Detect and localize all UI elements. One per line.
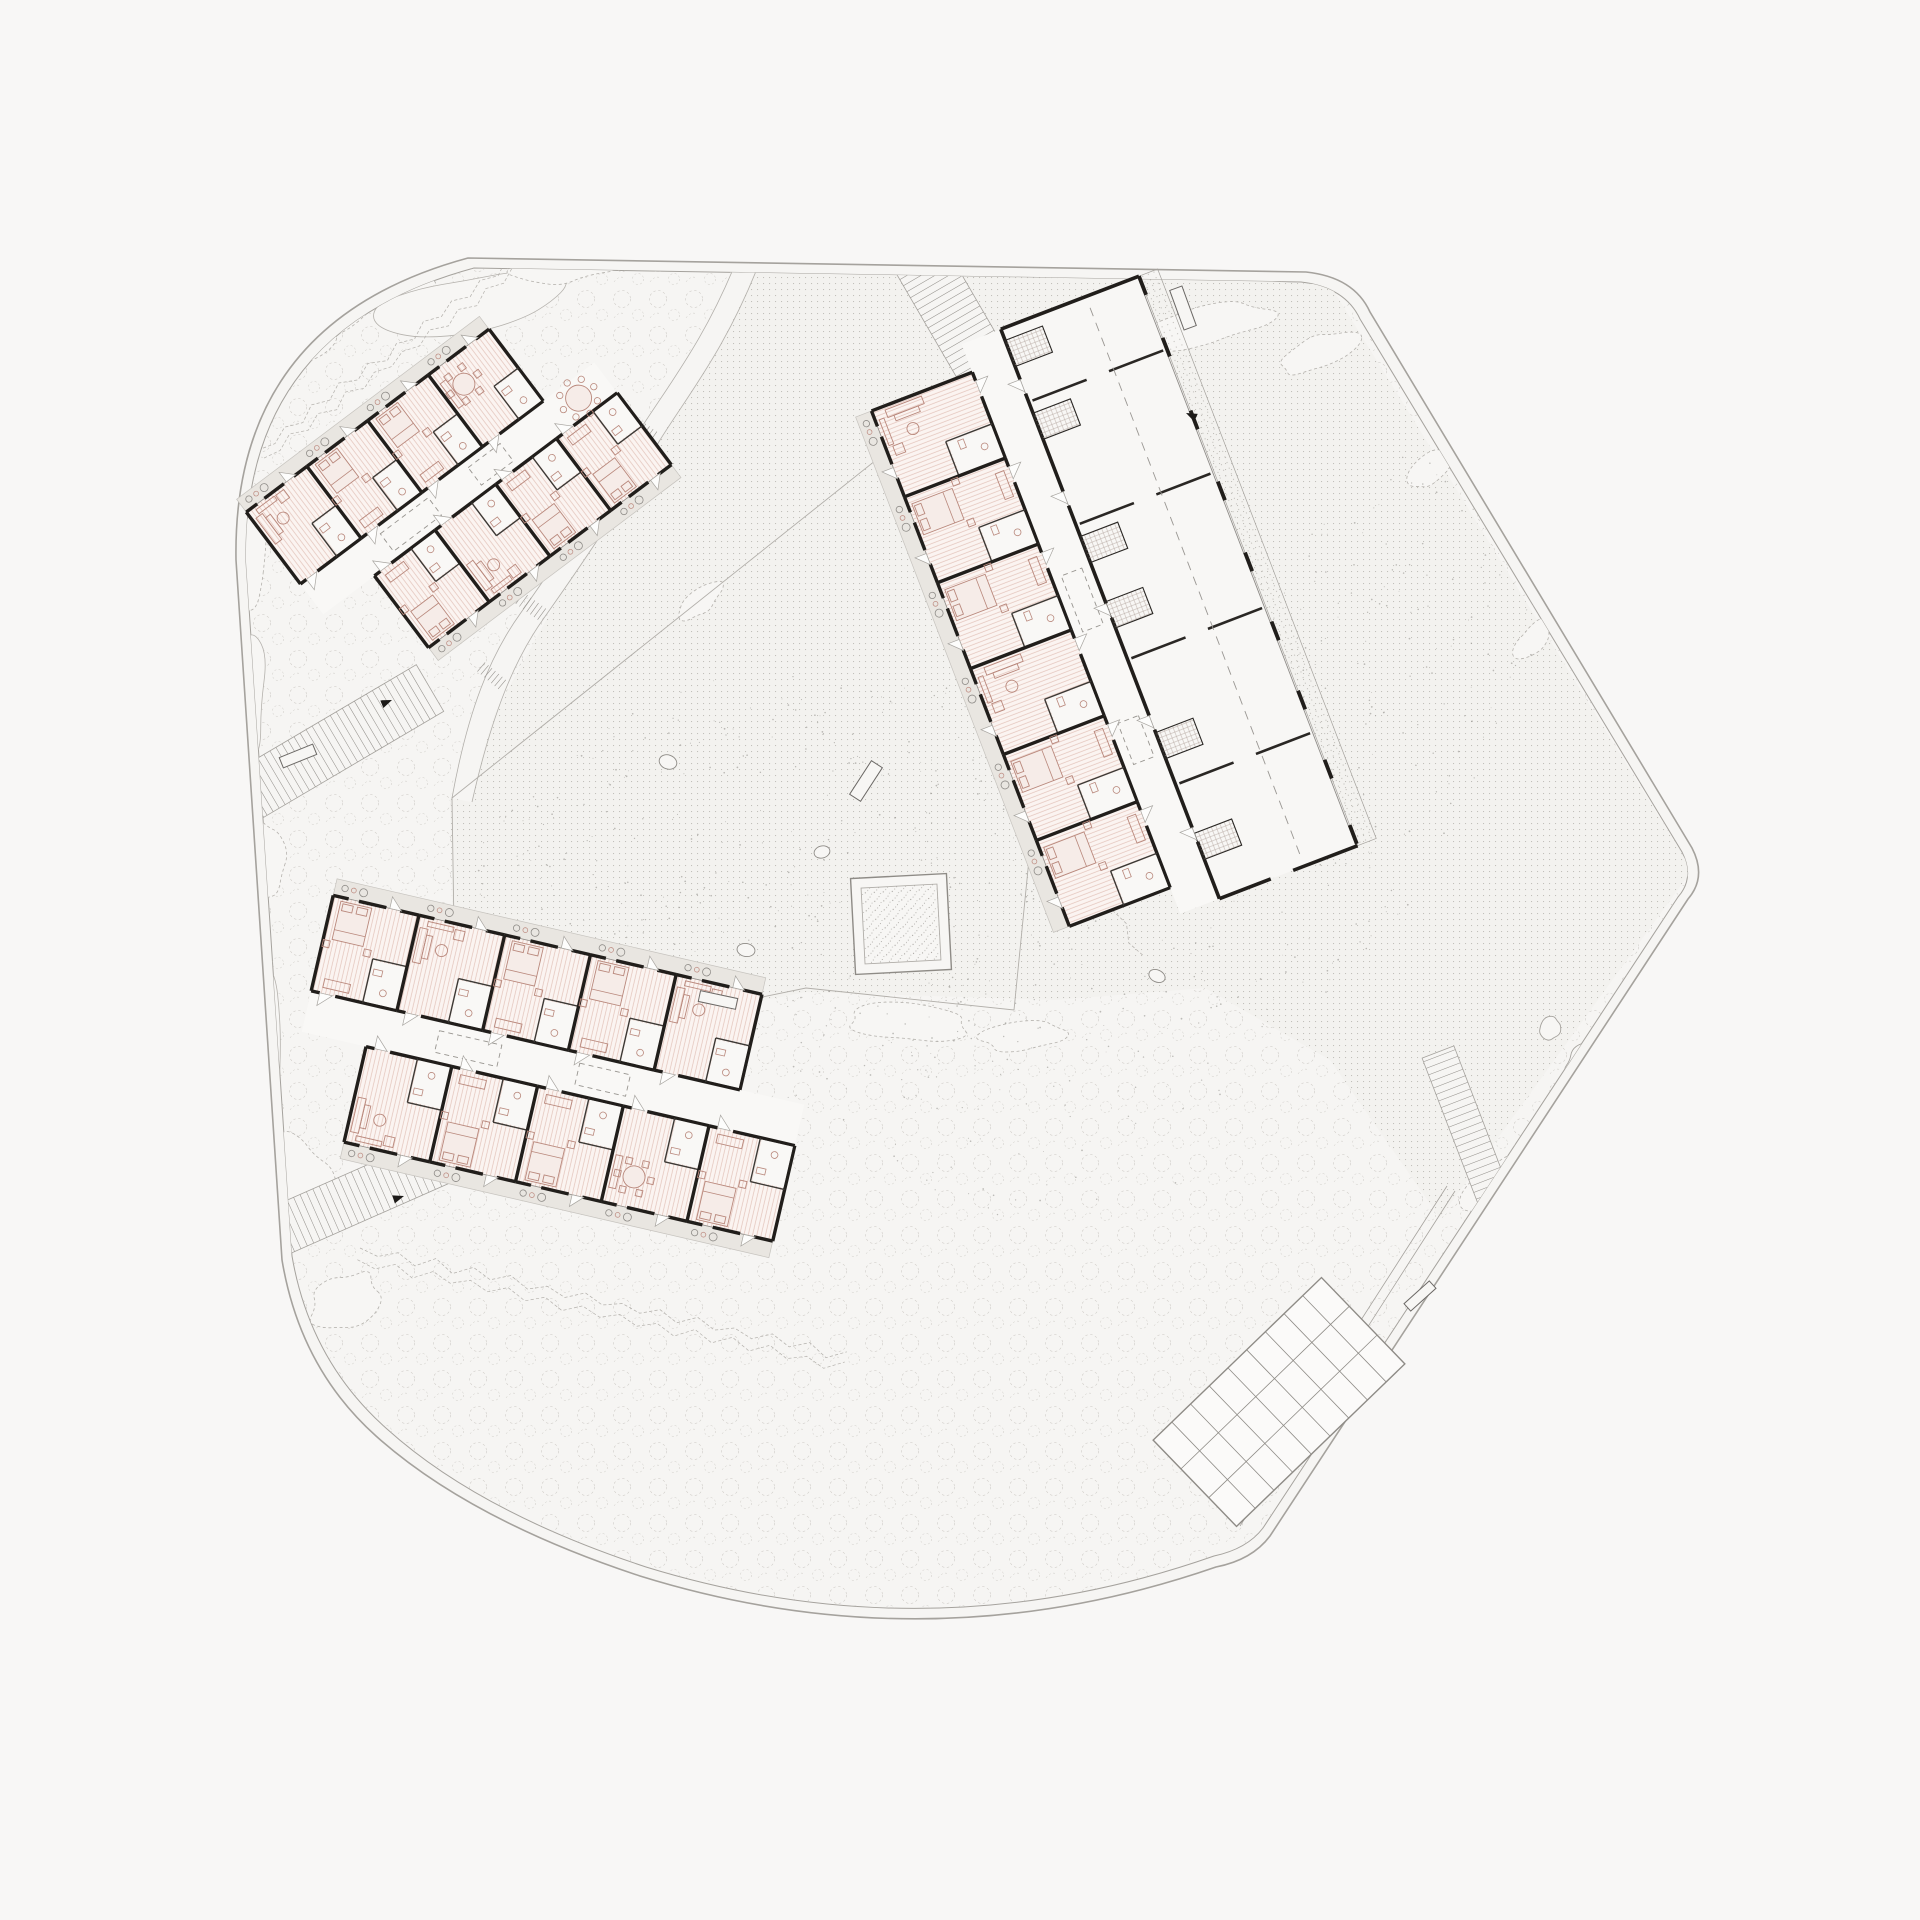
corridor-wall xyxy=(538,1086,547,1088)
corridor-wall xyxy=(623,1106,632,1108)
corridor-wall xyxy=(366,1047,375,1049)
pavilion-sand-court xyxy=(861,884,941,964)
corridor-wall xyxy=(654,1070,663,1072)
architectural-site-plan xyxy=(0,0,1920,1920)
corridor-wall xyxy=(397,1011,406,1013)
corridor-wall xyxy=(452,1066,461,1068)
corridor-wall xyxy=(709,1126,718,1128)
corridor-wall xyxy=(568,1050,577,1052)
central-pavilion xyxy=(851,874,952,975)
corridor-wall xyxy=(483,1030,492,1032)
site-plan-drawing xyxy=(0,0,1920,1920)
corridor-wall xyxy=(311,991,320,993)
